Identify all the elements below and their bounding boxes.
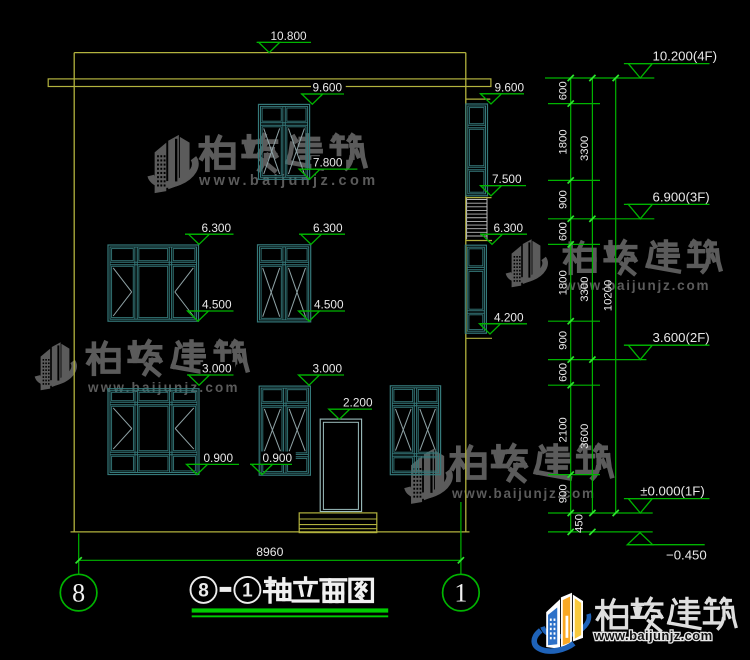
svg-text:10200: 10200 [603,280,615,311]
svg-text:4.500: 4.500 [202,298,232,312]
svg-text:600: 600 [558,363,570,382]
svg-text:600: 600 [558,81,570,100]
svg-text:1800: 1800 [558,270,570,295]
svg-text:3.000: 3.000 [202,362,232,376]
svg-text:6.300: 6.300 [202,221,232,235]
svg-text:2100: 2100 [558,417,570,442]
svg-text:7.500: 7.500 [492,172,522,186]
svg-text:6.300: 6.300 [494,221,524,235]
svg-text:9.600: 9.600 [313,81,343,95]
svg-text:9.600: 9.600 [495,80,525,94]
svg-text:10.200(4F): 10.200(4F) [653,49,718,64]
svg-text:600: 600 [558,222,570,241]
svg-text:3.600(2F): 3.600(2F) [653,330,710,345]
svg-text:1: 1 [242,581,253,602]
svg-text:0.900: 0.900 [263,451,293,465]
svg-text:7.800: 7.800 [313,156,343,170]
svg-text:www.baijunjz.com: www.baijunjz.com [593,628,713,643]
svg-text:6.900(3F): 6.900(3F) [653,189,710,204]
svg-text:8960: 8960 [256,545,283,559]
svg-text:1800: 1800 [558,129,570,154]
svg-text:3600: 3600 [579,424,591,449]
svg-text:8: 8 [72,579,85,608]
svg-text:900: 900 [558,190,570,209]
svg-text:3.000: 3.000 [313,362,343,376]
svg-text:900: 900 [558,484,570,503]
svg-text:3300: 3300 [579,277,591,302]
svg-text:900: 900 [558,331,570,350]
svg-text:0.900: 0.900 [204,451,234,465]
svg-text:10.800: 10.800 [271,29,308,43]
svg-text:4.200: 4.200 [494,310,524,324]
svg-text:1: 1 [454,579,467,608]
svg-text:www.baijunjz.com: www.baijunjz.com [451,486,596,501]
svg-text:±0.000(1F): ±0.000(1F) [640,484,704,499]
svg-text:2.200: 2.200 [343,396,373,410]
svg-text:3300: 3300 [579,136,591,161]
svg-text:450: 450 [574,514,586,533]
svg-text:6.300: 6.300 [313,221,343,235]
svg-text:−0.450: −0.450 [666,548,707,563]
svg-text:4.500: 4.500 [314,298,344,312]
svg-text:8: 8 [198,581,209,602]
